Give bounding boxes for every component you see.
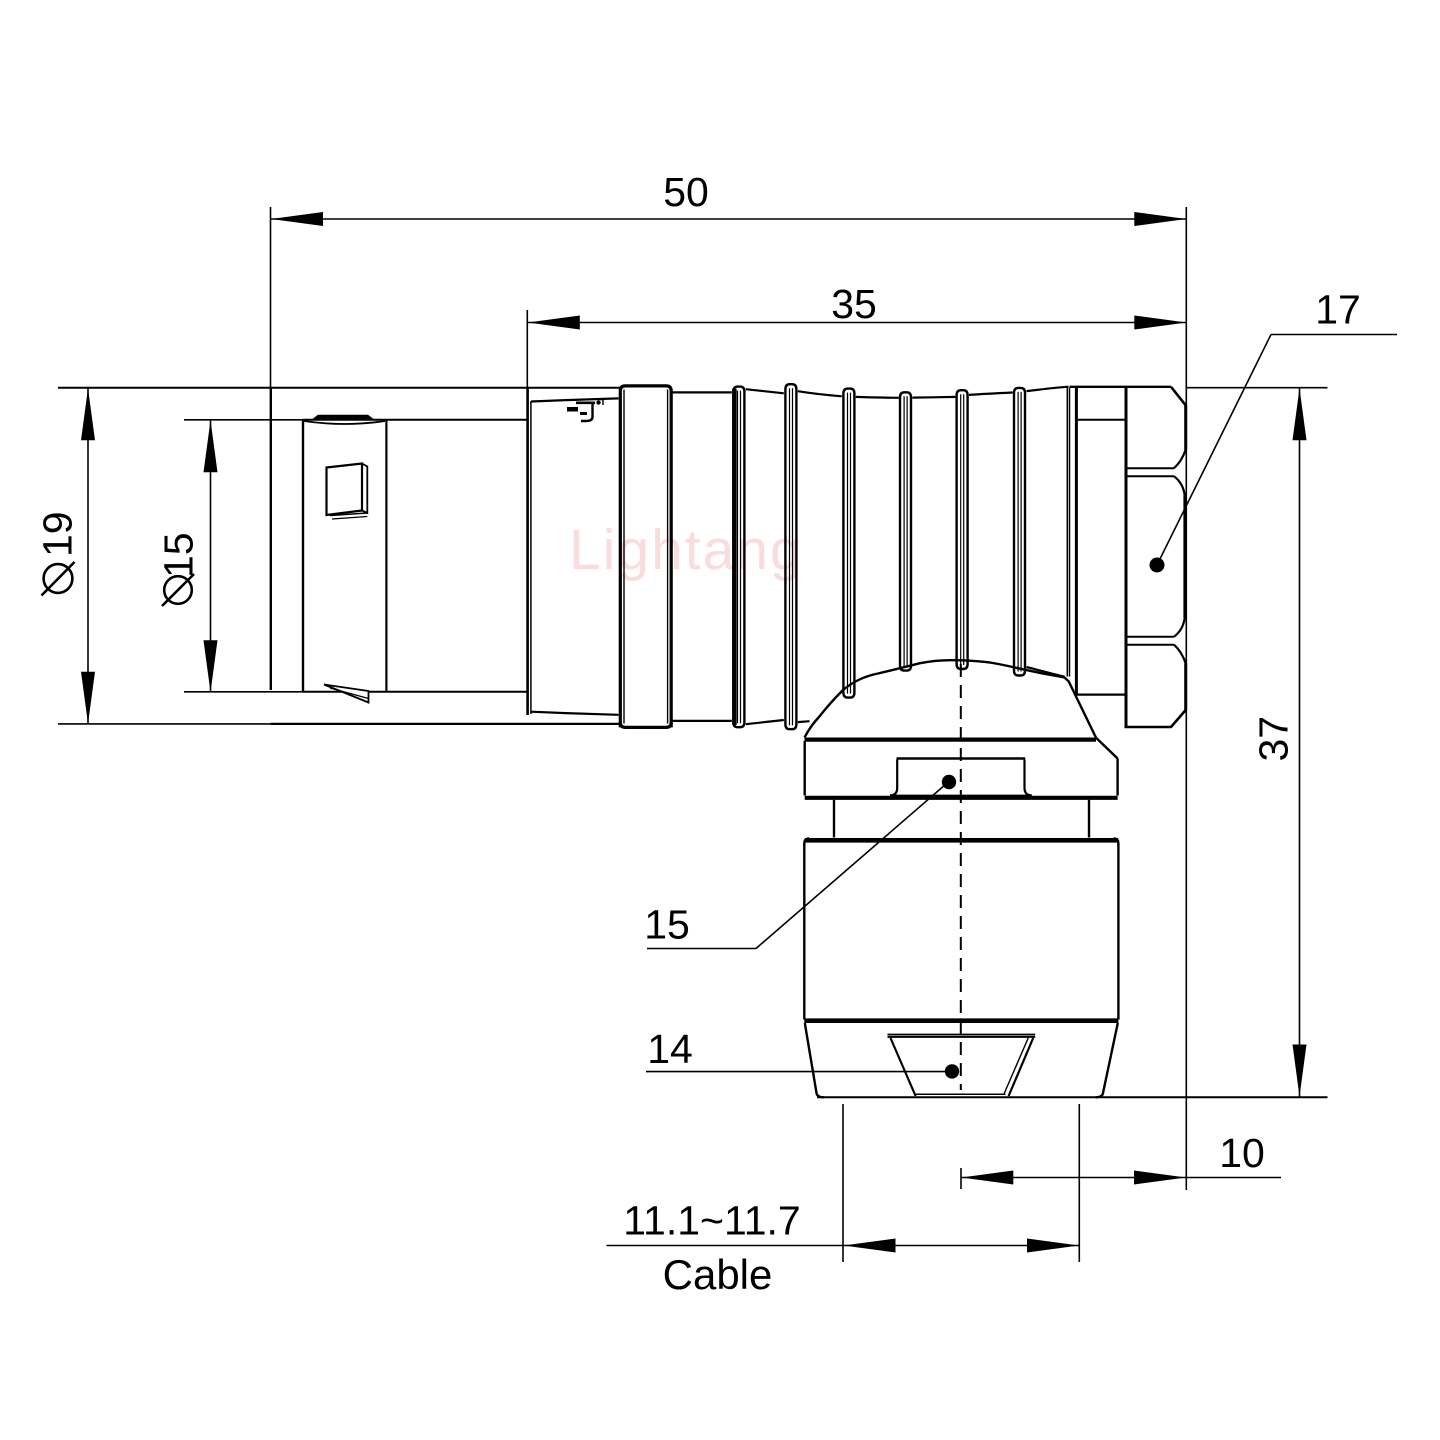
svg-text:11.1~11.7: 11.1~11.7 — [623, 1198, 800, 1244]
svg-text:37: 37 — [1251, 716, 1297, 762]
svg-text:50: 50 — [663, 169, 709, 215]
svg-text:Lightang: Lightang — [569, 518, 804, 582]
svg-text:15: 15 — [644, 902, 690, 948]
svg-text:17: 17 — [1315, 287, 1361, 333]
svg-text:14: 14 — [647, 1026, 693, 1072]
svg-text:Cable: Cable — [663, 1251, 773, 1298]
svg-text:19: 19 — [35, 511, 81, 557]
svg-text:35: 35 — [831, 281, 877, 327]
svg-text:15: 15 — [156, 532, 202, 578]
svg-text:10: 10 — [1219, 1130, 1265, 1176]
